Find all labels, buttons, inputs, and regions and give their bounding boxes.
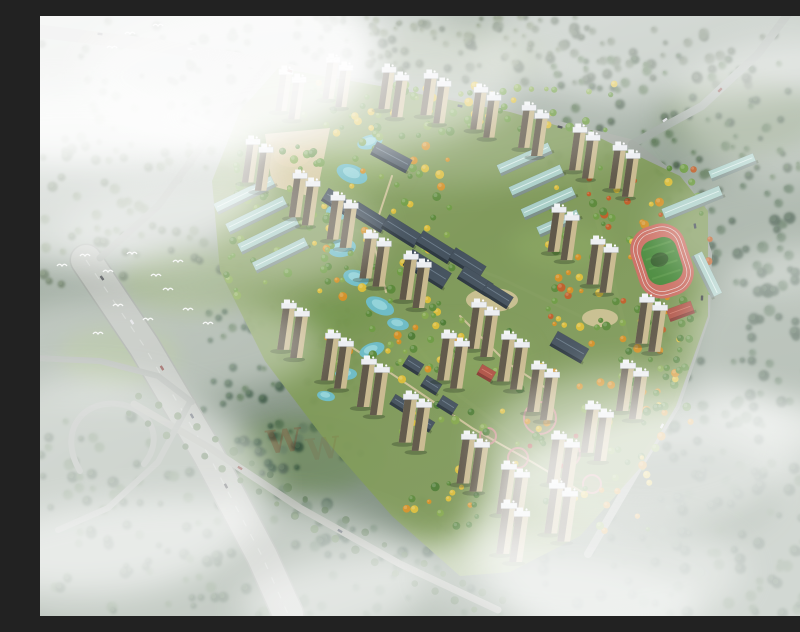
aerial-scene-canvas	[40, 16, 800, 616]
masterplan-rendering: W W	[40, 16, 800, 616]
atmosphere-overlay	[40, 16, 800, 616]
